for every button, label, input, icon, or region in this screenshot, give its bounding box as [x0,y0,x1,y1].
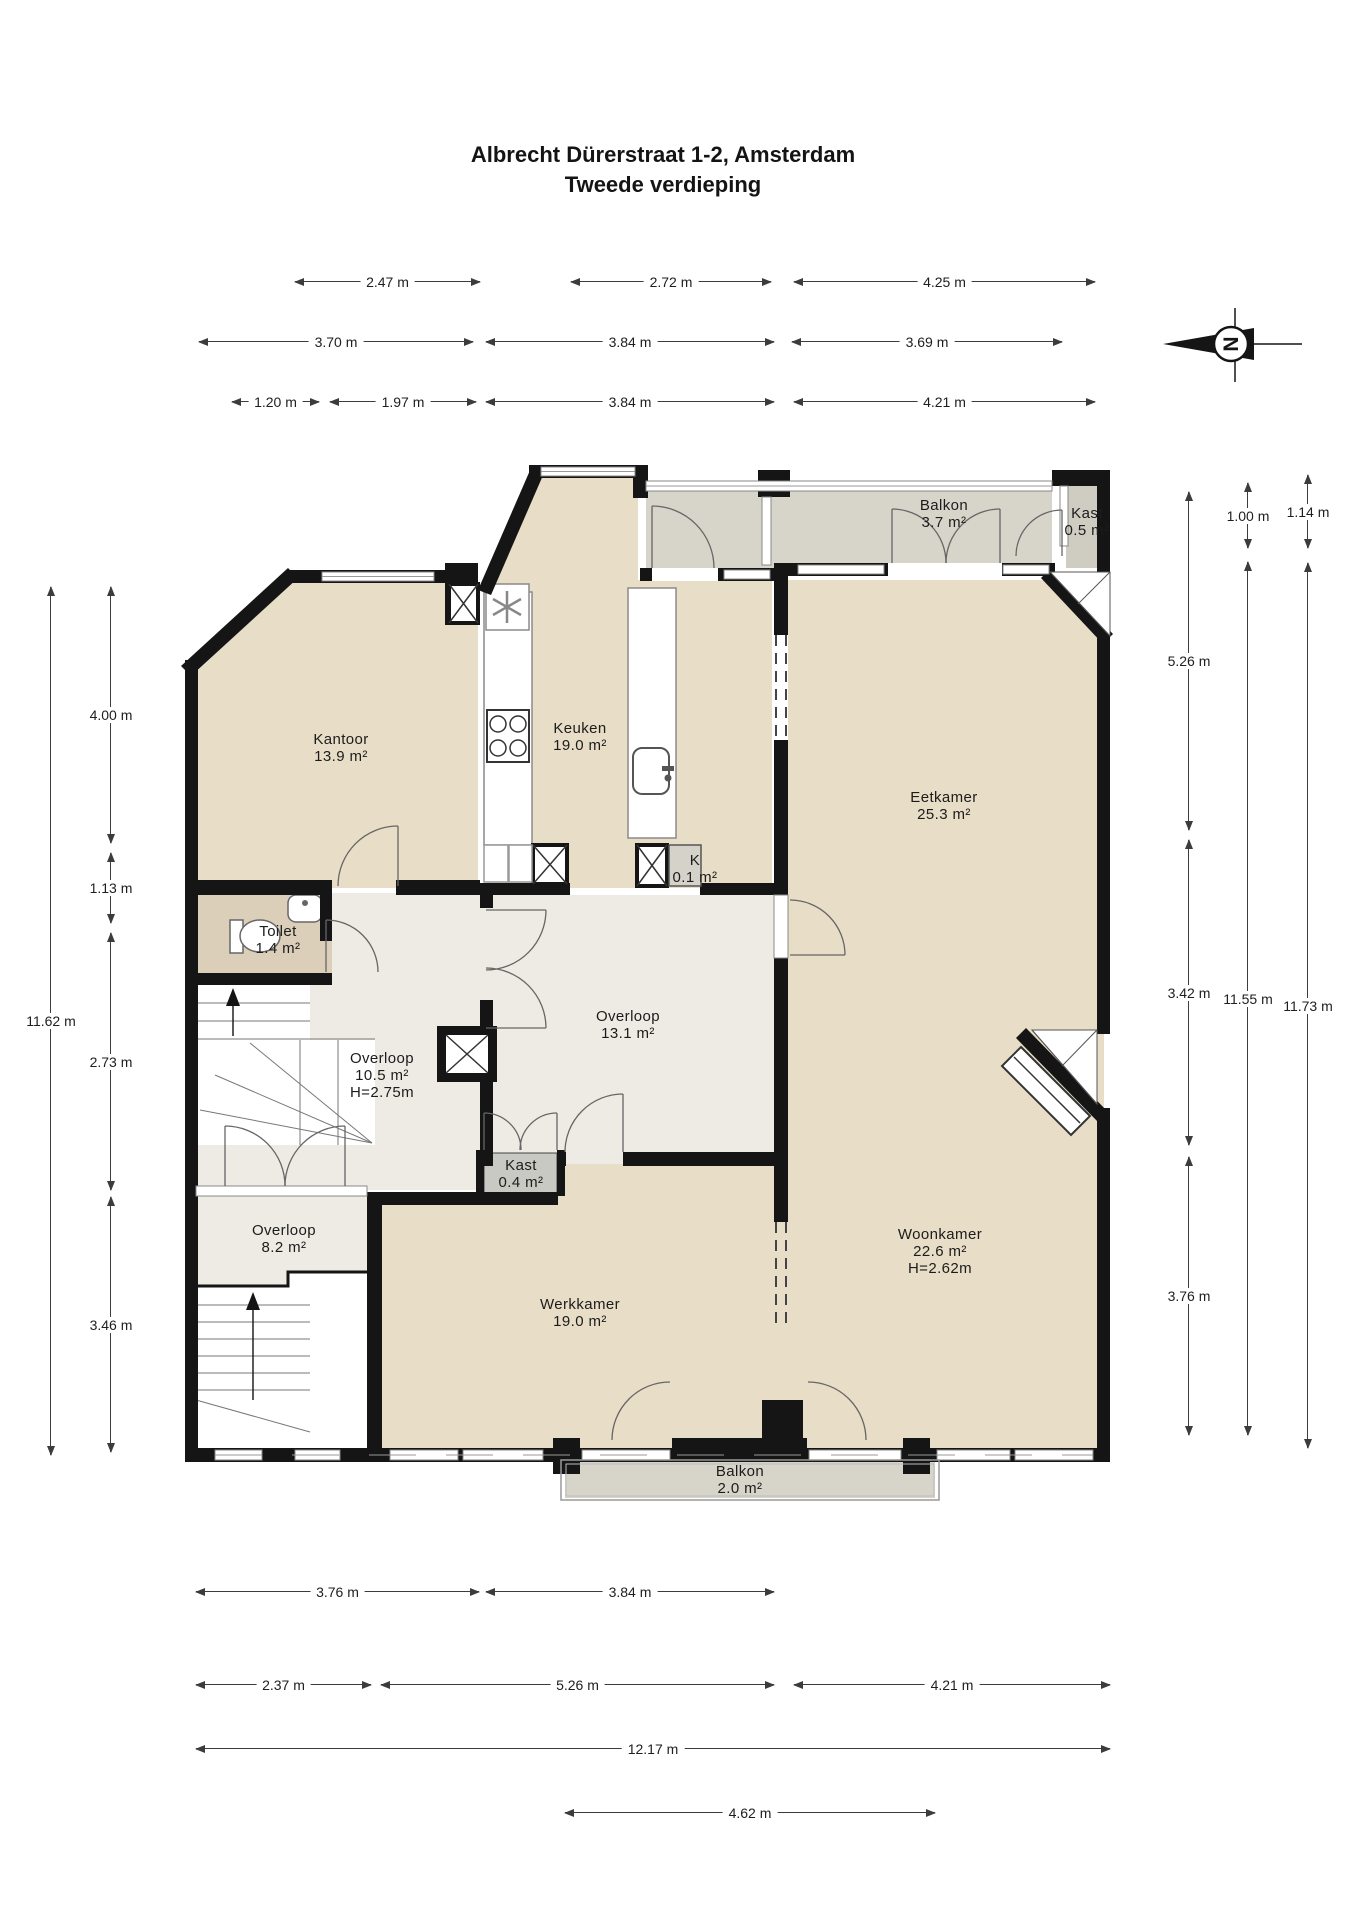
dim-top: 2.47 m [295,281,480,282]
room-label-balkon-top: Balkon3.7 m² [920,497,968,531]
room-label-keuken: Keuken19.0 m² [553,720,607,754]
washbasin-icon [288,895,322,922]
room-label-eetkamer: Eetkamer25.3 m² [910,789,977,823]
dim-right: 3.76 m [1188,1157,1189,1435]
dim-top: 3.84 m [486,401,774,402]
dim-right: 5.26 m [1188,492,1189,830]
dim-top: 3.70 m [199,341,473,342]
dim-bottom: 5.26 m [381,1684,774,1685]
dim-bottom: 12.17 m [196,1748,1110,1749]
room-label-overloop-left: Overloop10.5 m²H=2.75m [350,1050,414,1101]
dim-top: 1.97 m [330,401,476,402]
room-label-overloop-mid: Overloop13.1 m² [596,1008,660,1042]
dim-left: 3.46 m [110,1197,111,1452]
dim-top: 4.25 m [794,281,1095,282]
dim-top: 4.21 m [794,401,1095,402]
room-label-kast-top: Kast0.5 m² [1065,505,1110,539]
dim-top: 3.84 m [486,341,774,342]
dim-right: 3.42 m [1188,840,1189,1145]
floorplan-page: Albrecht Dürerstraat 1-2, Amsterdam Twee… [0,0,1358,1920]
dim-right: 1.00 m [1247,483,1248,548]
room-label-balkon-bottom: Balkon2.0 m² [716,1463,764,1497]
room-label-toilet: Toilet1.4 m² [256,923,301,957]
dim-right: 11.73 m [1307,563,1308,1448]
sink-icon [633,748,674,794]
room-label-overloop-bottom: Overloop8.2 m² [252,1222,316,1256]
dim-bottom: 3.84 m [486,1591,774,1592]
dim-top: 2.72 m [571,281,771,282]
dim-left: 11.62 m [50,587,51,1455]
room-label-woonkamer: Woonkamer22.6 m²H=2.62m [898,1226,982,1277]
dim-left: 2.73 m [110,933,111,1190]
dim-bottom: 2.37 m [196,1684,371,1685]
dim-left: 1.13 m [110,853,111,923]
dim-right: 11.55 m [1247,562,1248,1435]
dim-left: 4.00 m [110,587,111,843]
elevator-shaft [437,1026,497,1082]
dim-bottom: 3.76 m [196,1591,479,1592]
dim-top: 1.20 m [232,401,319,402]
room-label-kantoor: Kantoor13.9 m² [313,731,368,765]
dim-right: 1.14 m [1307,475,1308,548]
dim-bottom: 4.62 m [565,1812,935,1813]
room-label-werkkamer: Werkkamer19.0 m² [540,1296,620,1330]
north-compass-icon: N [1163,308,1302,382]
compass-letter: N [1220,336,1243,351]
dim-bottom: 4.21 m [794,1684,1110,1685]
room-label-k-closet: K0.1 m² [673,852,718,886]
stove-icon [487,710,529,762]
room-label-kast-small: Kast0.4 m² [499,1157,544,1191]
dim-top: 3.69 m [792,341,1062,342]
